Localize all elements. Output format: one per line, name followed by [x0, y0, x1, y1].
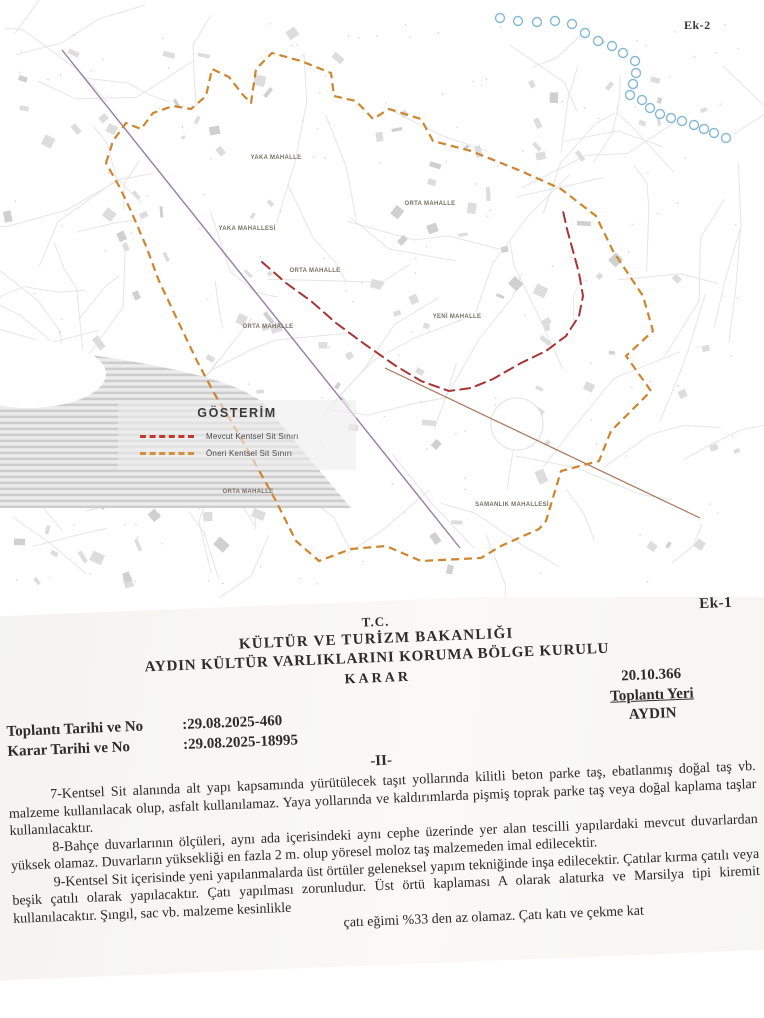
legend-label-proposed: Öneri Kentsel Sit Sınırı	[206, 449, 292, 458]
district-label: SAMANLIK MAHALLESİ	[475, 502, 549, 508]
decision-meta-right: 20.10.366 Toplantı Yeri AYDIN	[609, 664, 695, 726]
roundabout	[491, 398, 543, 450]
existing-site-boundary-line	[262, 211, 583, 391]
decision-date-value: :29.08.2025-18995	[183, 733, 299, 754]
annex-label-ek1: Ek-1	[699, 597, 732, 613]
scanned-paper: Ek-1 T.C. KÜLTÜR VE TURİZM BAKANLIĞI AYD…	[0, 597, 764, 981]
district-label: ORTA MAHALLE	[405, 201, 456, 207]
district-label: ORTA MAHALLE	[243, 324, 294, 330]
proposed-boundary-swatch	[140, 452, 194, 455]
decision-meta-left: Toplantı Tarihi ve No :29.08.2025-460 Ka…	[6, 710, 298, 762]
legend-item-existing: Mevcut Kentsel Sit Sınırı	[118, 428, 356, 445]
decision-number: 20.10.366	[609, 664, 693, 687]
district-label: YAKA MAHALLESİ	[218, 226, 275, 232]
decision-body: 7-Kentsel Sit alanında alt yapı kapsamın…	[8, 758, 762, 945]
meeting-date-value: :29.08.2025-460	[182, 713, 283, 733]
legend-item-proposed: Öneri Kentsel Sit Sınırı	[118, 445, 356, 462]
cadastral-map-panel: GÖSTERİM Mevcut Kentsel Sit Sınırı Öneri…	[0, 0, 764, 598]
district-label: ORTA MAHALLE	[290, 268, 341, 274]
meeting-place-label: Toplantı Yeri	[610, 684, 694, 707]
cadastral-texture	[0, 0, 764, 598]
district-label: YENİ MAHALLE	[433, 314, 482, 320]
map-legend: GÖSTERİM Mevcut Kentsel Sit Sınırı Öneri…	[118, 400, 356, 470]
annex-label-ek2: Ek-2	[684, 18, 711, 33]
legend-label-existing: Mevcut Kentsel Sit Sınırı	[206, 432, 299, 441]
district-label: YAKA MAHALLE	[251, 155, 302, 161]
legend-title: GÖSTERİM	[118, 406, 356, 420]
district-label: ORTA MAHALLE	[223, 489, 274, 495]
map-drawing	[0, 0, 764, 598]
existing-boundary-swatch	[140, 435, 194, 438]
scanned-page: GÖSTERİM Mevcut Kentsel Sit Sınırı Öneri…	[0, 0, 764, 1018]
decision-document-panel: Ek-1 T.C. KÜLTÜR VE TURİZM BAKANLIĞI AYD…	[0, 597, 764, 1018]
meeting-place: AYDIN	[611, 703, 695, 726]
